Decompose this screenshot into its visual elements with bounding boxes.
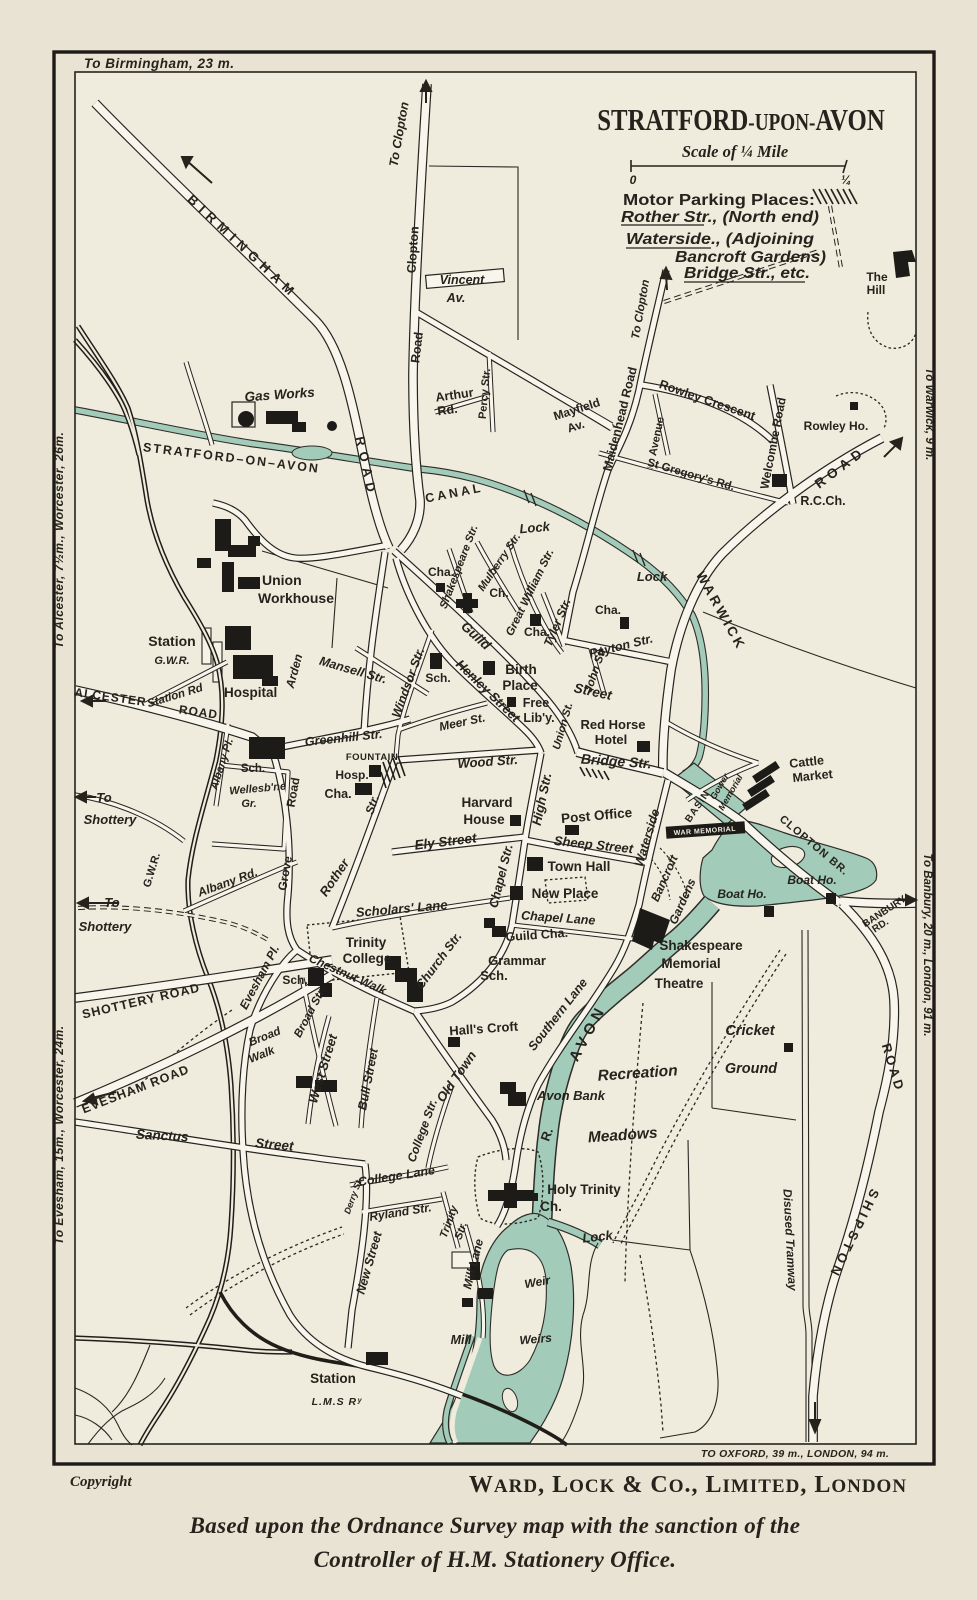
svg-text:Sch.: Sch. (425, 671, 450, 685)
svg-text:Bancroft Gardens): Bancroft Gardens) (675, 249, 826, 266)
svg-text:Hotel: Hotel (595, 732, 628, 747)
svg-text:To Banbury, 20 m., London, 91: To Banbury, 20 m., London, 91 m. (921, 853, 933, 1036)
svg-text:Sch.: Sch. (282, 973, 307, 987)
svg-text:L.M.S Rʸ: L.M.S Rʸ (312, 1396, 363, 1408)
svg-text:House: House (463, 812, 505, 827)
svg-text:Bridge Str., etc.: Bridge Str., etc. (684, 265, 810, 282)
svg-text:Free: Free (523, 696, 549, 710)
svg-text:0: 0 (630, 173, 637, 187)
svg-text:Shottery: Shottery (79, 919, 133, 934)
svg-text:Ch.: Ch. (489, 586, 508, 600)
svg-text:Cricket: Cricket (725, 1023, 775, 1039)
svg-text:College: College (343, 951, 392, 966)
svg-text:Hospital: Hospital (224, 685, 277, 700)
svg-text:G.W.R.: G.W.R. (154, 655, 189, 667)
svg-text:Lib'y.: Lib'y. (523, 711, 554, 725)
svg-text:Lock: Lock (519, 519, 551, 537)
svg-text:Birth: Birth (505, 662, 537, 677)
svg-text:Vincent: Vincent (440, 273, 486, 287)
svg-text:Workhouse: Workhouse (258, 590, 334, 606)
svg-text:Cha.: Cha. (428, 565, 454, 579)
svg-text:Copyright: Copyright (70, 1474, 133, 1490)
svg-text:Trinity: Trinity (346, 935, 387, 950)
svg-text:Boat Ho.: Boat Ho. (787, 873, 836, 887)
svg-text:Station: Station (148, 633, 195, 649)
svg-text:Memorial: Memorial (661, 956, 720, 971)
svg-text:Cha.: Cha. (595, 603, 621, 617)
svg-text:Sch.: Sch. (480, 968, 507, 983)
svg-text:To Alcester, 7½m., Worcester,: To Alcester, 7½m., Worcester, 26m. (52, 432, 66, 649)
svg-text:Sanctus: Sanctus (136, 1127, 190, 1145)
svg-text:Union: Union (262, 572, 302, 588)
svg-text:Sch.: Sch. (241, 763, 265, 775)
svg-text:To: To (96, 790, 111, 805)
svg-text:Rd.: Rd. (436, 402, 458, 419)
svg-text:Hosp.: Hosp. (335, 768, 368, 782)
svg-text:Shottery: Shottery (84, 812, 138, 827)
svg-text:Based upon the Ordnance Survey: Based upon the Ordnance Survey map with … (189, 1513, 801, 1538)
svg-text:Gr.: Gr. (241, 798, 256, 810)
svg-text:FOUNTAIN: FOUNTAIN (346, 752, 398, 763)
svg-text:Theatre: Theatre (655, 976, 704, 991)
svg-text:Ch.: Ch. (540, 1199, 562, 1214)
svg-text:Station: Station (310, 1371, 356, 1386)
svg-text:Town Hall: Town Hall (548, 859, 611, 874)
svg-text:Mill: Mill (451, 1333, 472, 1347)
svg-text:To Birmingham, 23 m.: To Birmingham, 23 m. (84, 56, 235, 71)
svg-text:Harvard: Harvard (461, 795, 512, 810)
svg-text:Cha.: Cha. (324, 787, 351, 801)
svg-text:Grammar: Grammar (488, 953, 546, 968)
svg-text:Controller of H.M. Stationery: Controller of H.M. Stationery Office. (314, 1547, 677, 1572)
svg-text:Ground: Ground (725, 1061, 778, 1077)
svg-text:To Warwick, 9 m.: To Warwick, 9 m. (923, 368, 935, 461)
svg-text:Av.: Av. (446, 291, 466, 305)
svg-text:Scale of ¼ Mile: Scale of ¼ Mile (682, 142, 788, 161)
svg-text:Avon Bank: Avon Bank (536, 1088, 606, 1103)
svg-text:TO OXFORD, 39 m., LONDON, 94 m: TO OXFORD, 39 m., LONDON, 94 m. (701, 1448, 889, 1460)
svg-text:WARD, LOCK & CO., LIMITED, LON: WARD, LOCK & CO., LIMITED, LONDON (469, 1472, 907, 1498)
svg-text:New Place: New Place (532, 886, 599, 901)
svg-text:Waterside., (Adjoining: Waterside., (Adjoining (626, 231, 815, 248)
svg-text:Boat Ho.: Boat Ho. (717, 887, 766, 901)
svg-text:Weirs: Weirs (519, 1331, 553, 1348)
svg-text:STRATFORD-UPON-AVON: STRATFORD-UPON-AVON (597, 103, 885, 137)
svg-text:Holy Trinity: Holy Trinity (547, 1182, 621, 1197)
svg-text:R.C.Ch.: R.C.Ch. (800, 494, 845, 508)
svg-text:Rowley Ho.: Rowley Ho. (804, 419, 869, 433)
svg-text:Red Horse: Red Horse (580, 717, 645, 732)
svg-text:Hill: Hill (867, 283, 886, 297)
svg-text:Lock: Lock (637, 569, 668, 584)
svg-text:Rother Str., (North end): Rother Str., (North end) (621, 209, 819, 226)
svg-text:Shakespeare: Shakespeare (659, 938, 743, 953)
svg-text:To Evesham, 15m., Worcester, 2: To Evesham, 15m., Worcester, 24m. (52, 1025, 66, 1244)
svg-text:¼: ¼ (841, 173, 851, 187)
svg-text:Motor Parking Places:: Motor Parking Places: (623, 192, 815, 209)
svg-text:The: The (866, 270, 888, 284)
svg-text:Place: Place (502, 678, 538, 693)
